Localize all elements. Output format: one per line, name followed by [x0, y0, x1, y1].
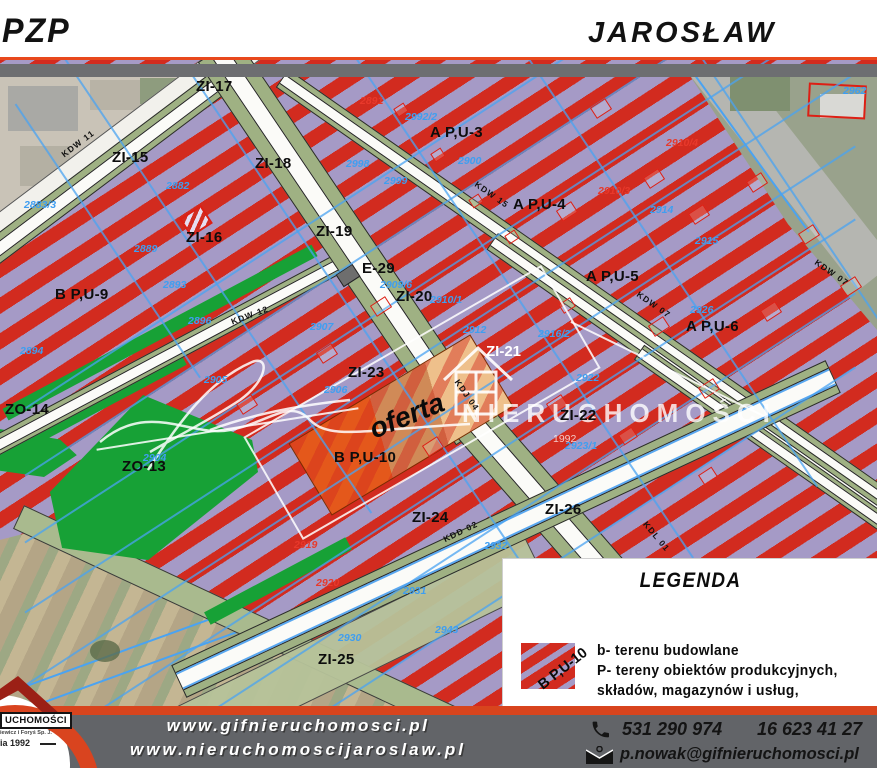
parcel-number: 2916/2: [538, 329, 570, 340]
road-label: KDJ 04: [453, 378, 481, 412]
parcel-number: 2910/1: [430, 295, 462, 306]
parcel-number: 2882: [166, 181, 189, 192]
envelope-icon: [586, 746, 613, 764]
zone-label: ZI-17: [196, 79, 233, 94]
phone-number[interactable]: 531 290 974: [622, 719, 722, 740]
badge-agency-name: UCHOMOŚCI: [0, 712, 72, 729]
parcel-number: 2930: [338, 633, 361, 644]
parcel-number: 2906: [324, 385, 347, 396]
zone-label: E-29: [362, 261, 395, 276]
parcel-number: 2900: [458, 156, 481, 167]
parcel-number: 2992/2: [405, 112, 437, 123]
phone-icon: [590, 719, 611, 740]
legend-text: b- terenu budowlane P- tereny obiektów p…: [597, 641, 838, 701]
parcel-number: 2883/3: [24, 200, 56, 211]
parcel-number: 2922: [576, 373, 599, 384]
parcel-number: 2999: [384, 176, 407, 187]
parcel-number: 2891: [360, 96, 383, 107]
legend-line: składów, magazynów i usług,: [597, 681, 838, 701]
flyer-root: NIERUCHOMOŚCI 1992 oferta ZI-17ZI-15ZI-1…: [0, 0, 877, 768]
parcel-number: 2914: [650, 205, 673, 216]
badge-dash: [40, 743, 56, 745]
parcel-number: 2920: [316, 578, 339, 589]
zone-label: B P,U-9: [55, 287, 109, 302]
header-divider: [0, 57, 877, 60]
zone-label: ZI-15: [112, 150, 149, 165]
parcel-number: 2889: [134, 244, 157, 255]
parcel-number: 2943: [435, 625, 458, 636]
zone-label: ZI-24: [412, 510, 449, 525]
zone-label: A P,U-6: [686, 319, 739, 334]
parcel-number: 2910/4: [666, 138, 698, 149]
legend-line: b- terenu budowlane: [597, 641, 838, 661]
zone-label: A P,U-3: [430, 125, 483, 140]
zone-label: ZI-25: [318, 652, 355, 667]
zone-label: B P,U-10: [334, 450, 396, 465]
road-label: KDW 15: [473, 180, 510, 210]
header-gray-bar: [0, 64, 877, 77]
footer: www.gifnieruchomosci.pl www.nieruchomosc…: [0, 706, 877, 768]
city-title: JAROSŁAW: [588, 17, 776, 50]
parcel-number: 2915: [695, 236, 718, 247]
agency-badge: UCHOMOŚCI iewicz i Foryś Sp. J. ia 1992: [0, 650, 130, 768]
parcel-number: 2910/3: [598, 186, 630, 197]
zone-label: A P,U-5: [586, 269, 639, 284]
parcel-number: 2923/1: [565, 441, 597, 452]
zone-label: ZO-14: [5, 402, 49, 417]
header: PZP JAROSŁAW: [0, 0, 877, 57]
parcel-number: 2894: [20, 346, 43, 357]
legend-line: P- tereny obiektów produkcyjnych,: [597, 661, 838, 681]
plan-title: PZP: [2, 12, 71, 51]
parcel-number: 2896: [188, 316, 211, 327]
zone-label: ZI-23: [348, 365, 385, 380]
parcel-number: 2905: [204, 375, 227, 386]
road-label: KDW 12: [230, 305, 270, 326]
parcel-number: 2907: [310, 322, 333, 333]
phone-number[interactable]: 16 623 41 27: [757, 719, 862, 740]
parcel-number: 2932: [484, 541, 507, 552]
parcel-number: 2912: [463, 325, 486, 336]
zone-label: ZI-22: [560, 408, 597, 423]
road-label: KDW 11: [60, 129, 96, 159]
road-label: KDW 07: [813, 258, 850, 288]
zone-label: ZI-20: [396, 289, 433, 304]
legend-title: LEGENDA: [522, 569, 860, 593]
badge-partners: iewicz i Foryś Sp. J.: [0, 730, 52, 736]
zone-label: ZI-26: [545, 502, 582, 517]
road-label: KDL 01: [641, 520, 671, 553]
parcel-number: 2931: [403, 586, 426, 597]
legend-box: LEGENDA B P,U-10 b- terenu budowlane P- …: [502, 558, 877, 707]
parcel-number: 2904: [143, 453, 166, 464]
zone-label: ZI-16: [186, 230, 223, 245]
road-label: KDW 07: [635, 290, 672, 320]
parcel-number: 2926: [690, 305, 713, 316]
badge-since: ia 1992: [0, 738, 30, 748]
parcel-number: 2998: [346, 159, 369, 170]
parcel-number: 2909/6: [380, 280, 412, 291]
zone-label: ZI-21: [486, 344, 521, 359]
zone-label: ZI-18: [255, 156, 292, 171]
parcel-number: 2962: [843, 86, 866, 97]
parcel-number: 2893: [163, 280, 186, 291]
email-address[interactable]: p.nowak@gifnieruchomosci.pl: [620, 745, 859, 764]
parcel-number: 2919: [294, 540, 317, 551]
zone-label: ZI-19: [316, 224, 353, 239]
zone-label: A P,U-4: [513, 197, 566, 212]
